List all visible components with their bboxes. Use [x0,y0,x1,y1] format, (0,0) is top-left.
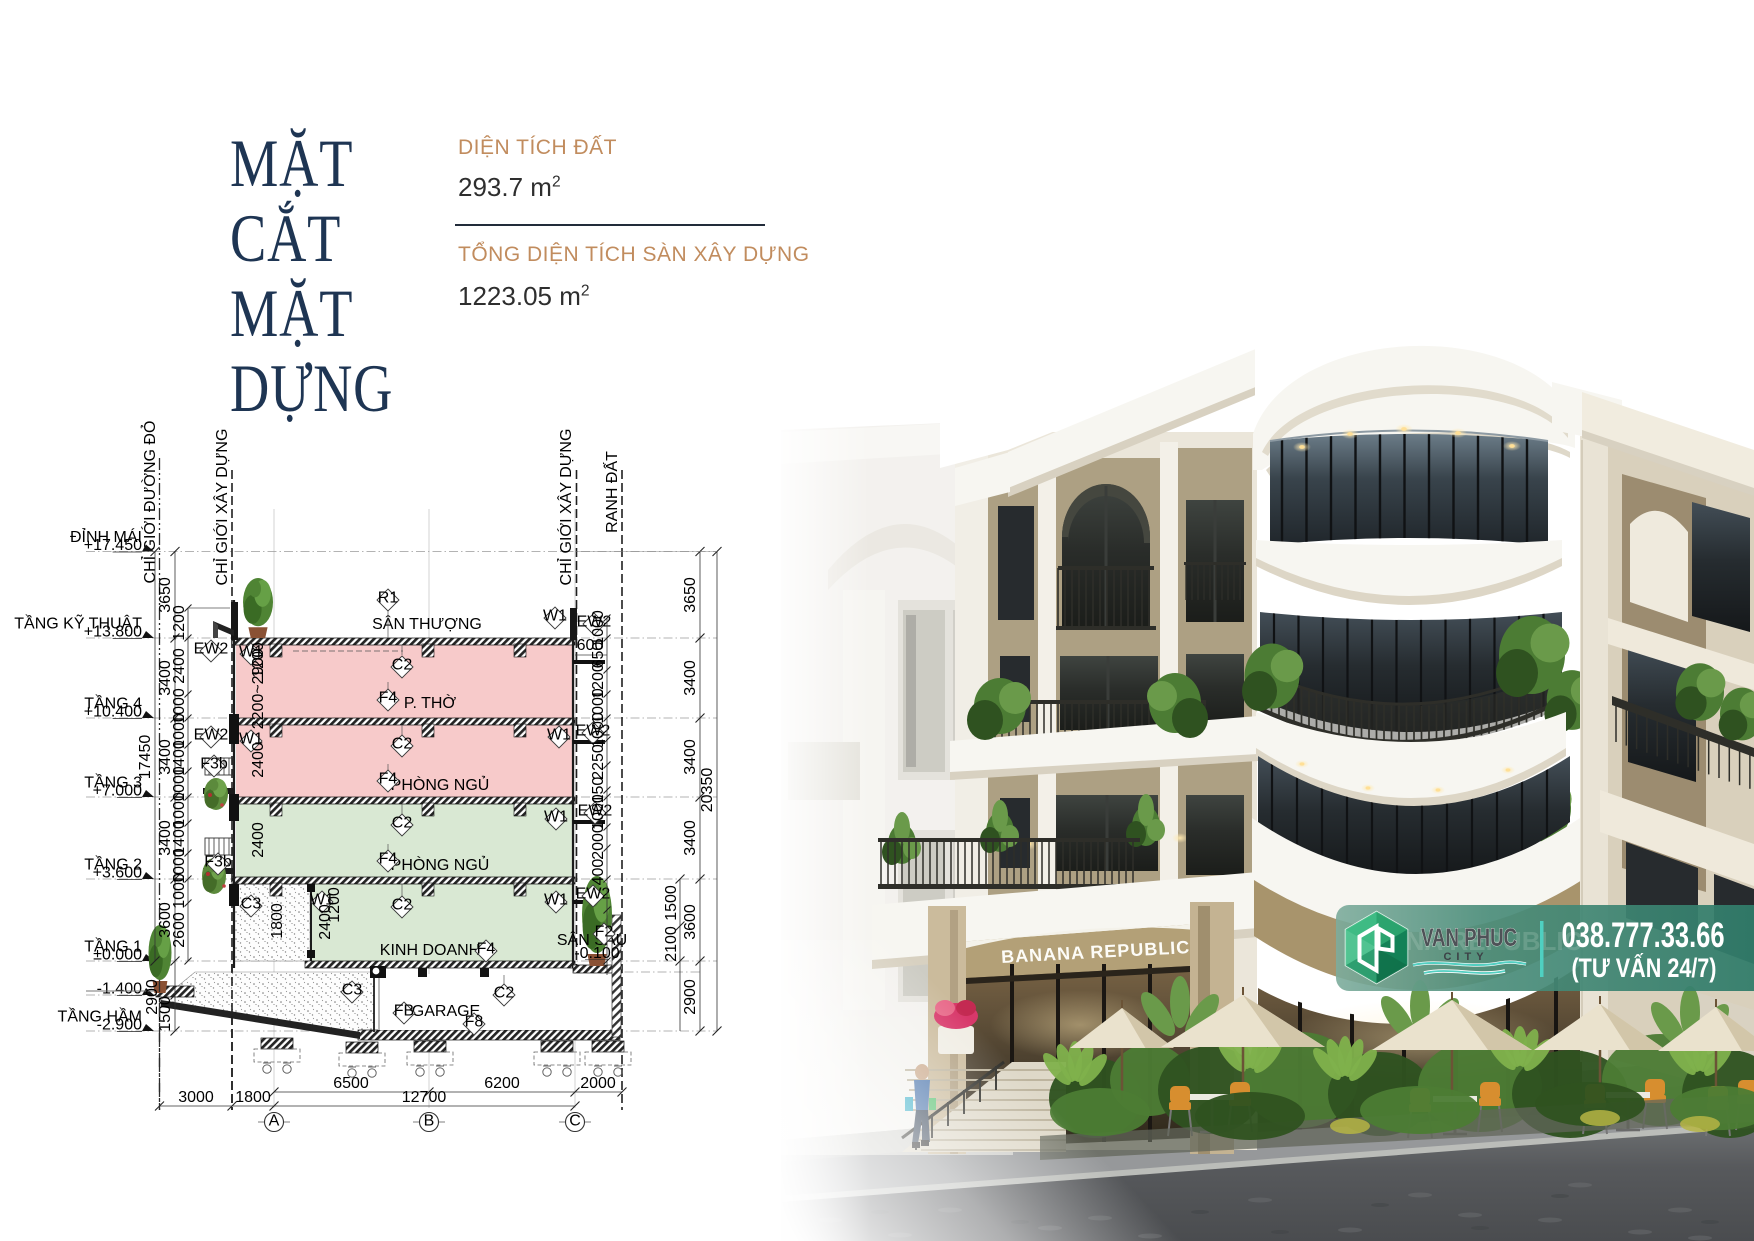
svg-text:3650: 3650 [682,577,699,613]
svg-text:-2.900: -2.900 [97,1017,142,1034]
svg-text:6500: 6500 [333,1075,369,1092]
svg-text:EW2: EW2 [576,885,611,902]
svg-text:+3.600: +3.600 [93,865,142,882]
svg-text:2900: 2900 [682,979,699,1015]
svg-text:17450: 17450 [137,735,154,780]
svg-text:C2: C2 [392,814,413,831]
svg-text:W1: W1 [547,726,571,743]
svg-text:1200: 1200 [326,887,343,923]
svg-text:6200: 6200 [484,1075,520,1092]
svg-text:CHỈ GIỚI ĐƯỜNG ĐỎ: CHỈ GIỚI ĐƯỜNG ĐỎ [140,421,159,584]
svg-text:F4: F4 [379,850,398,867]
svg-text:±0.000: ±0.000 [93,947,142,964]
svg-text:+7.000: +7.000 [93,783,142,800]
svg-text:R1: R1 [378,589,399,606]
svg-text:C2: C2 [392,656,413,673]
svg-text:F4: F4 [477,940,496,957]
svg-text:C3: C3 [342,981,363,998]
svg-text:(TƯ VẤN 24/7): (TƯ VẤN 24/7) [1572,952,1717,983]
svg-text:400: 400 [590,859,607,886]
svg-text:F2: F2 [595,923,614,940]
svg-text:F8: F8 [465,1013,484,1030]
svg-text:1500: 1500 [663,885,680,921]
svg-text:C3: C3 [241,895,262,912]
svg-text:FB: FB [394,1002,414,1019]
svg-text:F4: F4 [379,770,398,787]
svg-text:F3b: F3b [204,853,232,870]
svg-text:CHỈ GIỚI XÂY DỰNG: CHỈ GIỚI XÂY DỰNG [212,429,231,586]
svg-text:2400: 2400 [171,648,188,684]
svg-text:CHỈ GIỚI XÂY DỰNG: CHỈ GIỚI XÂY DỰNG [556,429,575,586]
svg-text:1800: 1800 [269,903,286,939]
svg-text:W1: W1 [544,891,568,908]
svg-text:-1.400: -1.400 [97,981,142,998]
svg-text:2000: 2000 [590,824,607,860]
svg-text:CITY: CITY [1443,951,1488,963]
svg-text:1000: 1000 [590,610,607,646]
svg-text:A: A [269,1113,280,1130]
svg-text:C2: C2 [392,735,413,752]
svg-text:KINH DOANH: KINH DOANH [380,942,480,959]
svg-text:P. THỜ: P. THỜ [404,693,457,712]
svg-text:C2: C2 [392,896,413,913]
svg-text:C2: C2 [494,984,515,1001]
svg-text:2000: 2000 [580,1075,616,1092]
svg-text:20350: 20350 [699,768,716,813]
svg-text:3000: 3000 [178,1089,214,1106]
svg-text:B: B [424,1113,435,1130]
svg-text:W1: W1 [544,808,568,825]
svg-text:W1: W1 [543,607,567,624]
svg-text:+17.450: +17.450 [84,537,142,554]
svg-text:2400: 2400 [250,742,267,778]
svg-text:SÂN THƯỢNG: SÂN THƯỢNG [372,614,482,633]
svg-text:VAN PHUC: VAN PHUC [1421,924,1517,952]
svg-text:1000: 1000 [171,873,188,909]
svg-text:3400: 3400 [682,739,699,775]
svg-text:F3b: F3b [200,755,228,772]
svg-text:2100: 2100 [663,926,680,962]
svg-text:+13.800: +13.800 [84,624,142,641]
svg-text:F4: F4 [379,689,398,706]
svg-text:PHÒNG NGỦ: PHÒNG NGỦ [391,775,490,794]
svg-text:EW2: EW2 [194,640,229,657]
svg-text:038.777.33.66: 038.777.33.66 [1562,916,1725,955]
svg-text:1000: 1000 [590,712,607,748]
svg-text:3400: 3400 [682,660,699,696]
svg-text:EW2: EW2 [194,726,229,743]
svg-text:1200: 1200 [250,642,267,678]
svg-text:2600: 2600 [171,912,188,948]
svg-text:2400: 2400 [250,822,267,858]
svg-text:1200: 1200 [171,605,188,641]
svg-text:PHÒNG NGỦ: PHÒNG NGỦ [391,855,490,874]
svg-text:2250: 2250 [590,744,607,780]
svg-text:+10.400: +10.400 [84,704,142,721]
svg-text:1800: 1800 [235,1089,271,1106]
svg-text:12700: 12700 [402,1089,447,1106]
svg-text:3400: 3400 [682,820,699,856]
svg-text:RANH ĐẤT: RANH ĐẤT [602,451,621,533]
svg-text:C: C [569,1113,581,1130]
svg-text:3600: 3600 [682,904,699,940]
